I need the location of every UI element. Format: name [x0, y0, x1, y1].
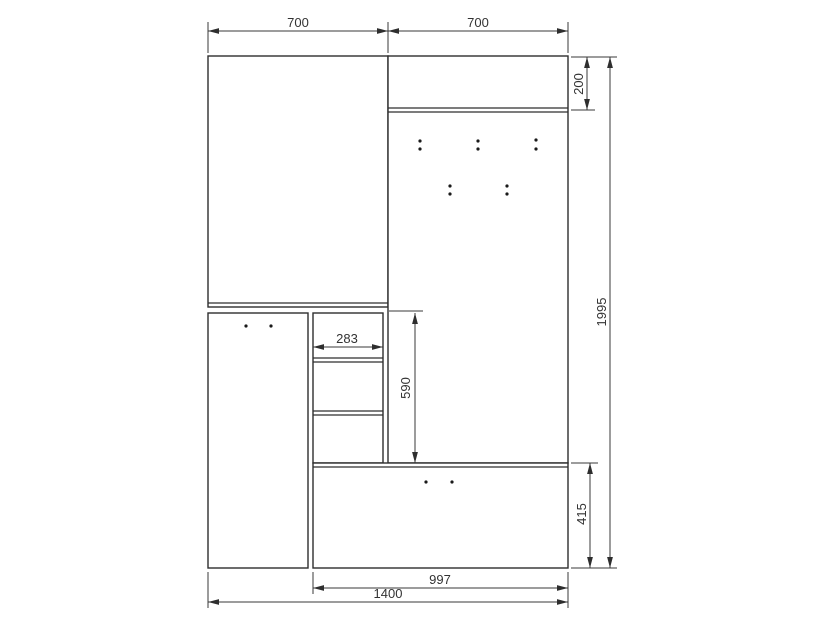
left-door-handle-dots-dot-1: [269, 324, 272, 327]
cabinet-panels-layer: [208, 56, 568, 568]
dim-open-section-height-590-label: 590: [398, 377, 413, 399]
bench-handle-dots-dot-1: [450, 480, 453, 483]
dim-bench-width-997-label: 997: [429, 572, 451, 587]
furniture-technical-drawing: 70070020019952835904159971400: [0, 0, 820, 640]
dim-bench-width-997: 997: [313, 572, 568, 588]
coat-hook-dots-dot-5: [534, 147, 537, 150]
dim-width-right-700: 700: [388, 15, 568, 31]
coat-hook-dots-dot-0: [418, 139, 421, 142]
dim-width-right-700-label: 700: [467, 15, 489, 30]
coat-hook-dots-dot-8: [505, 184, 508, 187]
coat-hook-dots-dot-7: [448, 192, 451, 195]
dim-width-left-700-label: 700: [287, 15, 309, 30]
dim-top-shelf-height-200-label: 200: [571, 73, 586, 95]
coat-hook-dots-dot-1: [418, 147, 421, 150]
lower-left-door-panel: [208, 313, 308, 568]
bench-handle-dots-dot-0: [424, 480, 427, 483]
left-door-handle-dots-dot-0: [244, 324, 247, 327]
coat-hook-dots-dot-9: [505, 192, 508, 195]
wardrobe-door-panel: [208, 56, 388, 307]
dim-total-height-1995-label: 1995: [594, 298, 609, 327]
dim-top-shelf-height-200: 200: [571, 57, 587, 110]
drawing-page: 70070020019952835904159971400: [0, 0, 820, 640]
dim-total-height-1995: 1995: [594, 57, 610, 568]
bench-drawer-box: [313, 463, 568, 568]
coat-hook-dots-dot-6: [448, 184, 451, 187]
coat-hook-dots-dot-4: [534, 138, 537, 141]
dim-total-width-1400-label: 1400: [374, 586, 403, 601]
dim-width-left-700: 700: [208, 15, 388, 31]
dim-bench-height-415-label: 415: [574, 503, 589, 525]
dim-bench-height-415: 415: [574, 463, 590, 568]
dim-shelf-width-283-label: 283: [336, 331, 358, 346]
coat-hook-dots-dot-3: [476, 147, 479, 150]
coat-hook-dots-dot-2: [476, 139, 479, 142]
